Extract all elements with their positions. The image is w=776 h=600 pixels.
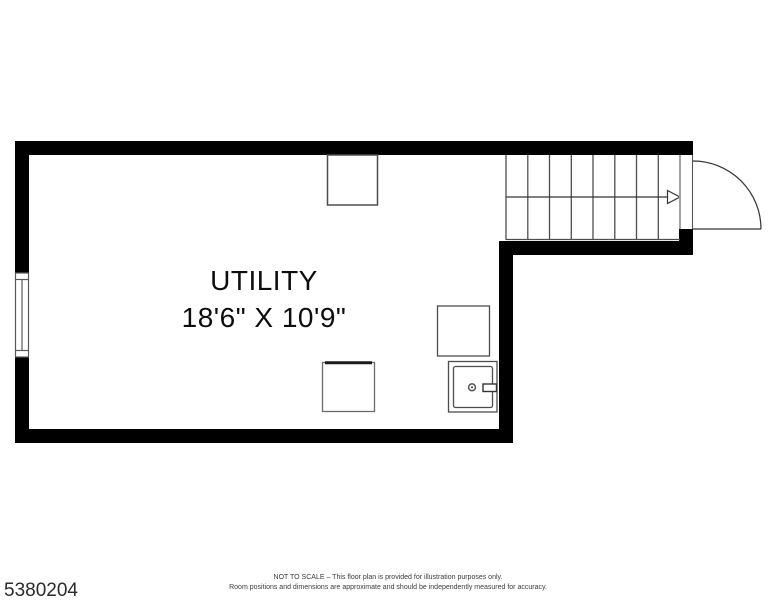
water-heater-valve xyxy=(483,384,497,392)
room-name: UTILITY xyxy=(108,262,420,299)
fixture-square-bottom xyxy=(323,363,375,412)
wall-left-upper xyxy=(15,141,29,273)
room-dimensions: 18'6" X 10'9" xyxy=(108,299,420,336)
fixture-square-top xyxy=(328,155,378,205)
floor-plan-page: UTILITY 18'6" X 10'9" 5380204 NOT TO SCA… xyxy=(0,0,776,600)
disclaimer: NOT TO SCALE – This floor plan is provid… xyxy=(0,573,776,592)
window xyxy=(15,273,29,357)
wall-inner-vertical xyxy=(499,241,513,443)
water-heater-knob-dot xyxy=(471,386,473,388)
wall-top xyxy=(15,141,693,155)
door xyxy=(679,155,761,229)
disclaimer-line-1: NOT TO SCALE – This floor plan is provid… xyxy=(0,573,776,583)
arrow-head xyxy=(668,191,681,204)
disclaimer-line-2: Room positions and dimensions are approx… xyxy=(0,583,776,593)
water-heater xyxy=(449,362,498,413)
wall-bottom xyxy=(15,429,513,443)
fixture-square-bottom-body xyxy=(323,363,375,412)
room-label: UTILITY 18'6" X 10'9" xyxy=(108,262,420,336)
wall-right-stub xyxy=(679,229,693,255)
wall-stair-bottom xyxy=(499,241,693,255)
fixture-square-right xyxy=(438,306,490,356)
door-opening xyxy=(679,155,693,229)
door-swing-arc xyxy=(693,161,761,229)
